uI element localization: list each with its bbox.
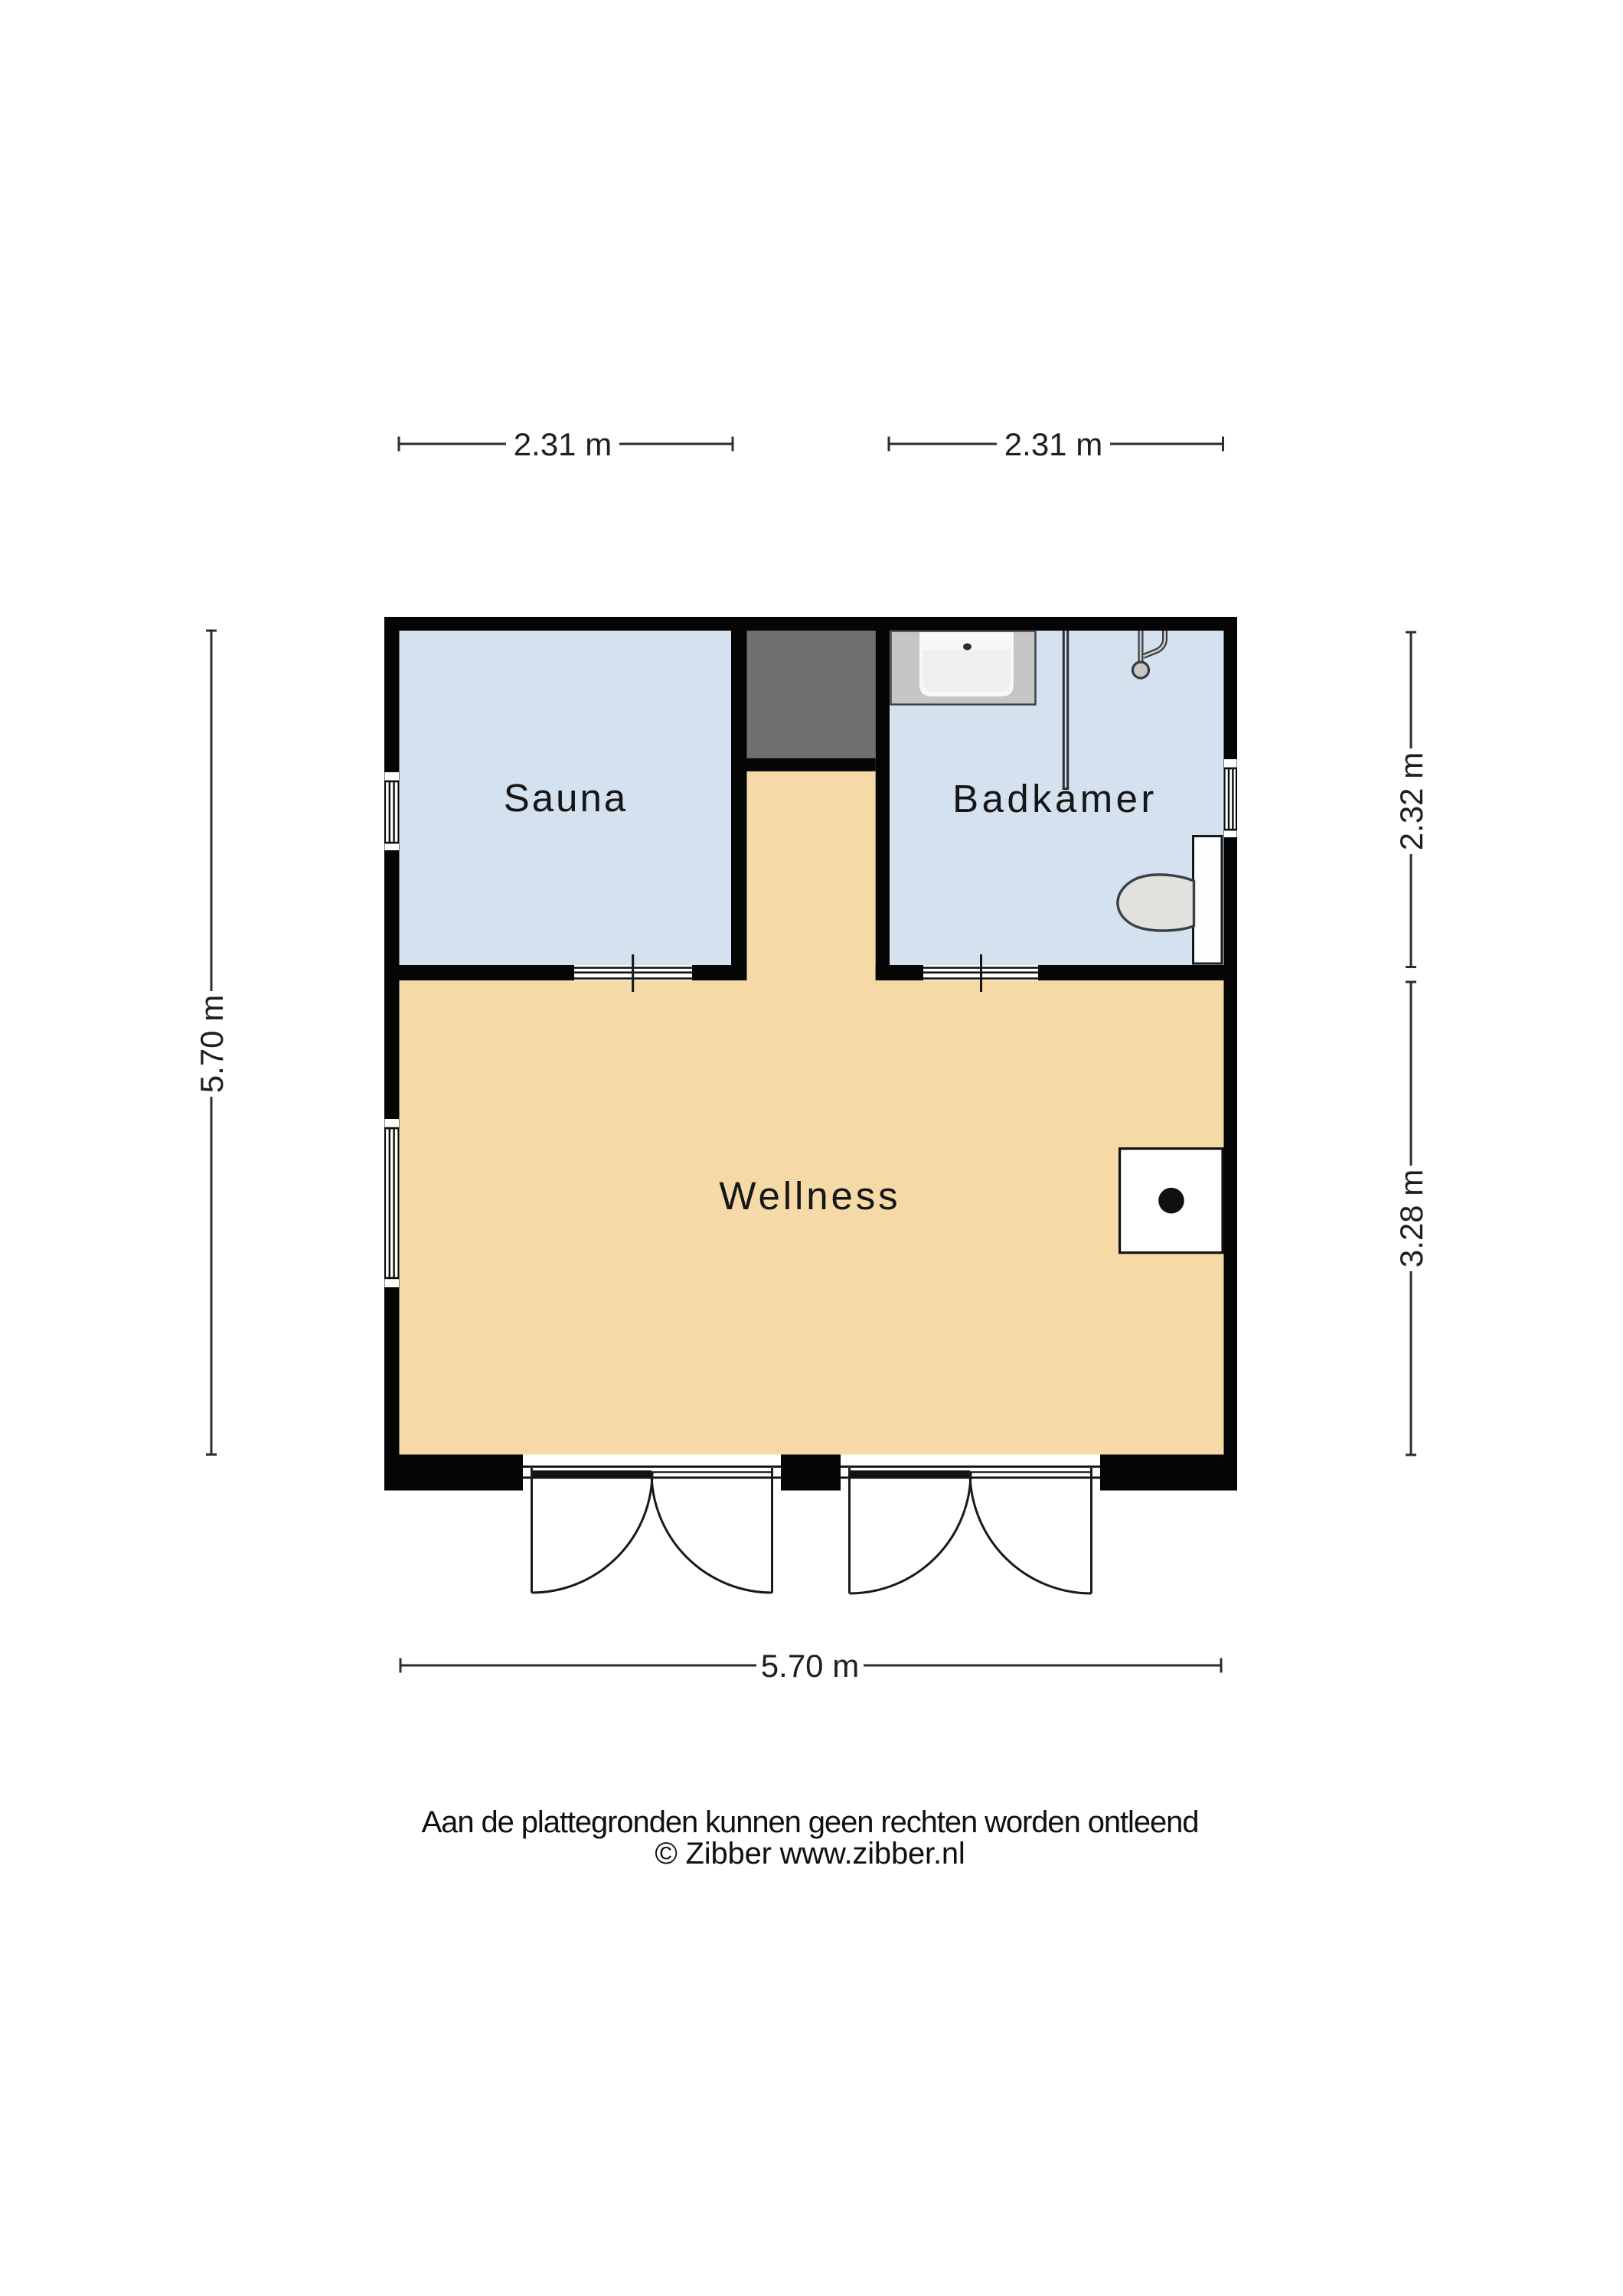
svg-text:5.70 m: 5.70 m (761, 1648, 859, 1684)
svg-text:Wellness: Wellness (719, 1174, 900, 1218)
svg-text:2.32 m: 2.32 m (1393, 752, 1429, 850)
svg-text:Aan de plattegronden kunnen ge: Aan de plattegronden kunnen geen rechten… (422, 1805, 1199, 1839)
svg-text:Badkamer: Badkamer (952, 777, 1158, 820)
svg-text:© Zibber www.zibber.nl: © Zibber www.zibber.nl (655, 1837, 965, 1870)
svg-text:5.70 m: 5.70 m (194, 995, 230, 1093)
svg-text:3.28 m: 3.28 m (1393, 1169, 1429, 1267)
svg-text:2.31 m: 2.31 m (1004, 426, 1102, 462)
svg-text:2.31 m: 2.31 m (514, 426, 612, 462)
svg-text:Sauna: Sauna (504, 776, 628, 820)
